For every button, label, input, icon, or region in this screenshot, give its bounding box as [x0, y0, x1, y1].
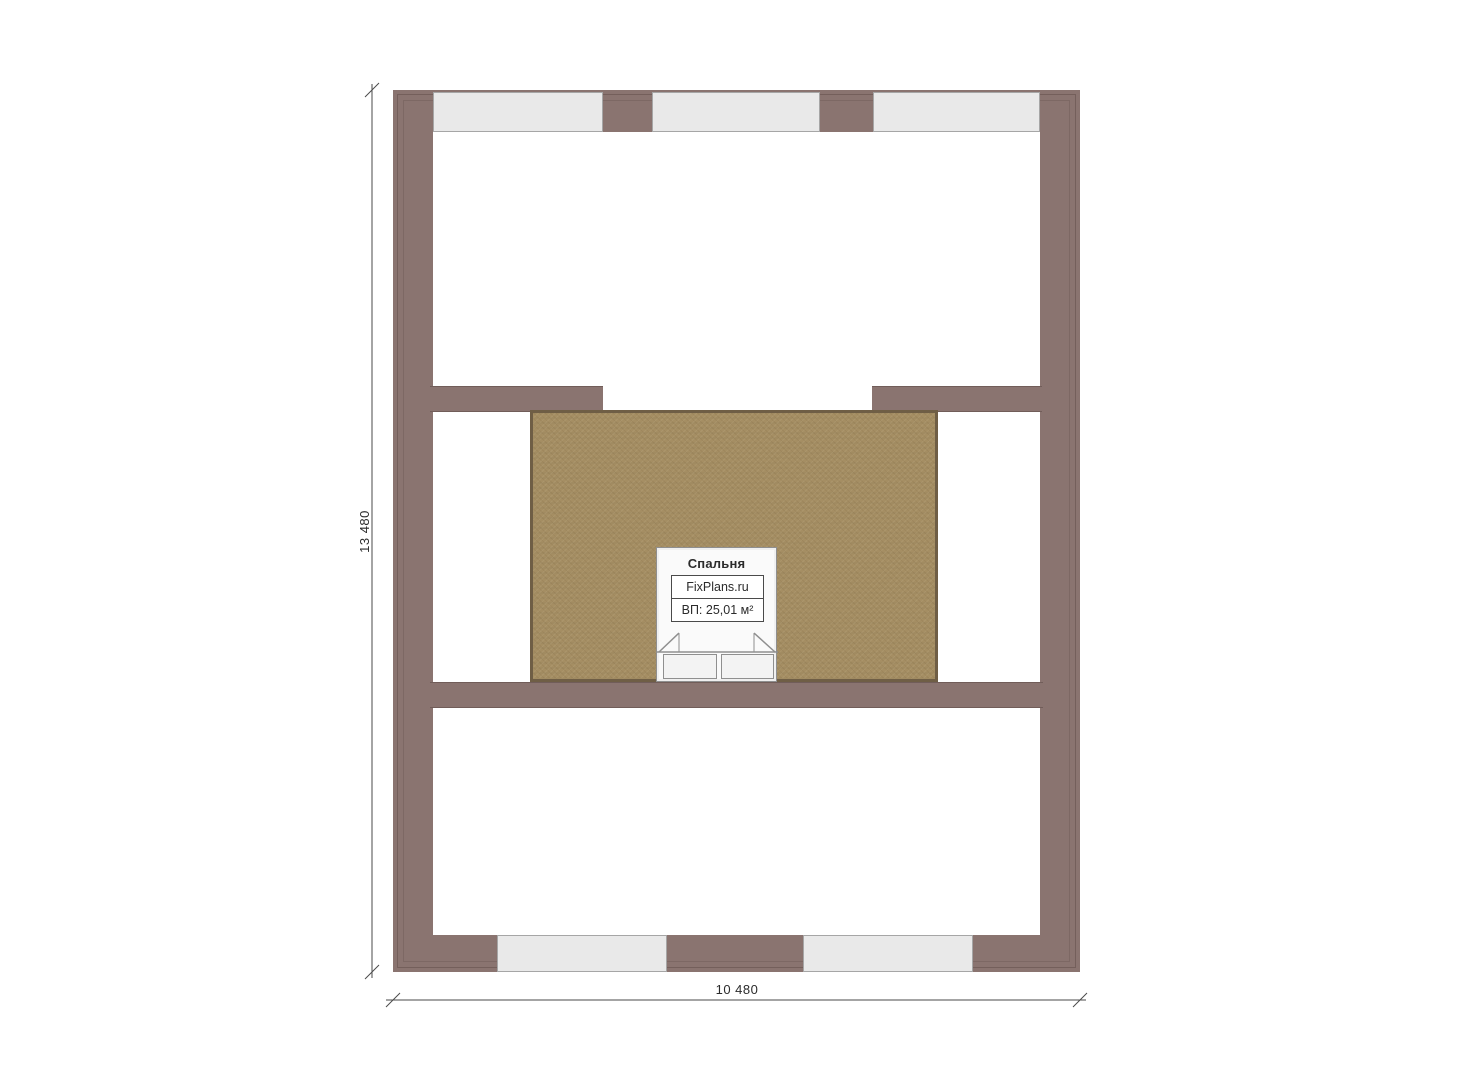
pillow-left: [663, 654, 717, 679]
window-bottom-1: [497, 935, 667, 972]
wall-right: [1040, 90, 1080, 972]
pillow-right: [721, 654, 774, 679]
room-label-area: ВП: 25,01 м²: [672, 599, 763, 621]
bed-symbol: Спальня FixPlans.ru ВП: 25,01 м²: [656, 547, 777, 682]
room-name: Спальня: [657, 556, 776, 571]
dimension-width-label: 10 480: [712, 982, 762, 997]
dimension-height-label: 13 480: [357, 510, 372, 553]
window-top-1: [433, 92, 603, 132]
window-top-2: [652, 92, 820, 132]
interior-wall-upper-left: [430, 386, 603, 412]
wall-left: [393, 90, 433, 972]
interior-wall-lower: [430, 682, 1043, 708]
interior-wall-upper-right: [872, 386, 1042, 412]
floor-plan-page: Спальня FixPlans.ru ВП: 25,01 м² 13 480 …: [0, 0, 1474, 1080]
window-top-3: [873, 92, 1040, 132]
window-bottom-2: [803, 935, 973, 972]
room-label-site: FixPlans.ru: [672, 576, 763, 599]
room-label-table: FixPlans.ru ВП: 25,01 м²: [671, 575, 764, 622]
